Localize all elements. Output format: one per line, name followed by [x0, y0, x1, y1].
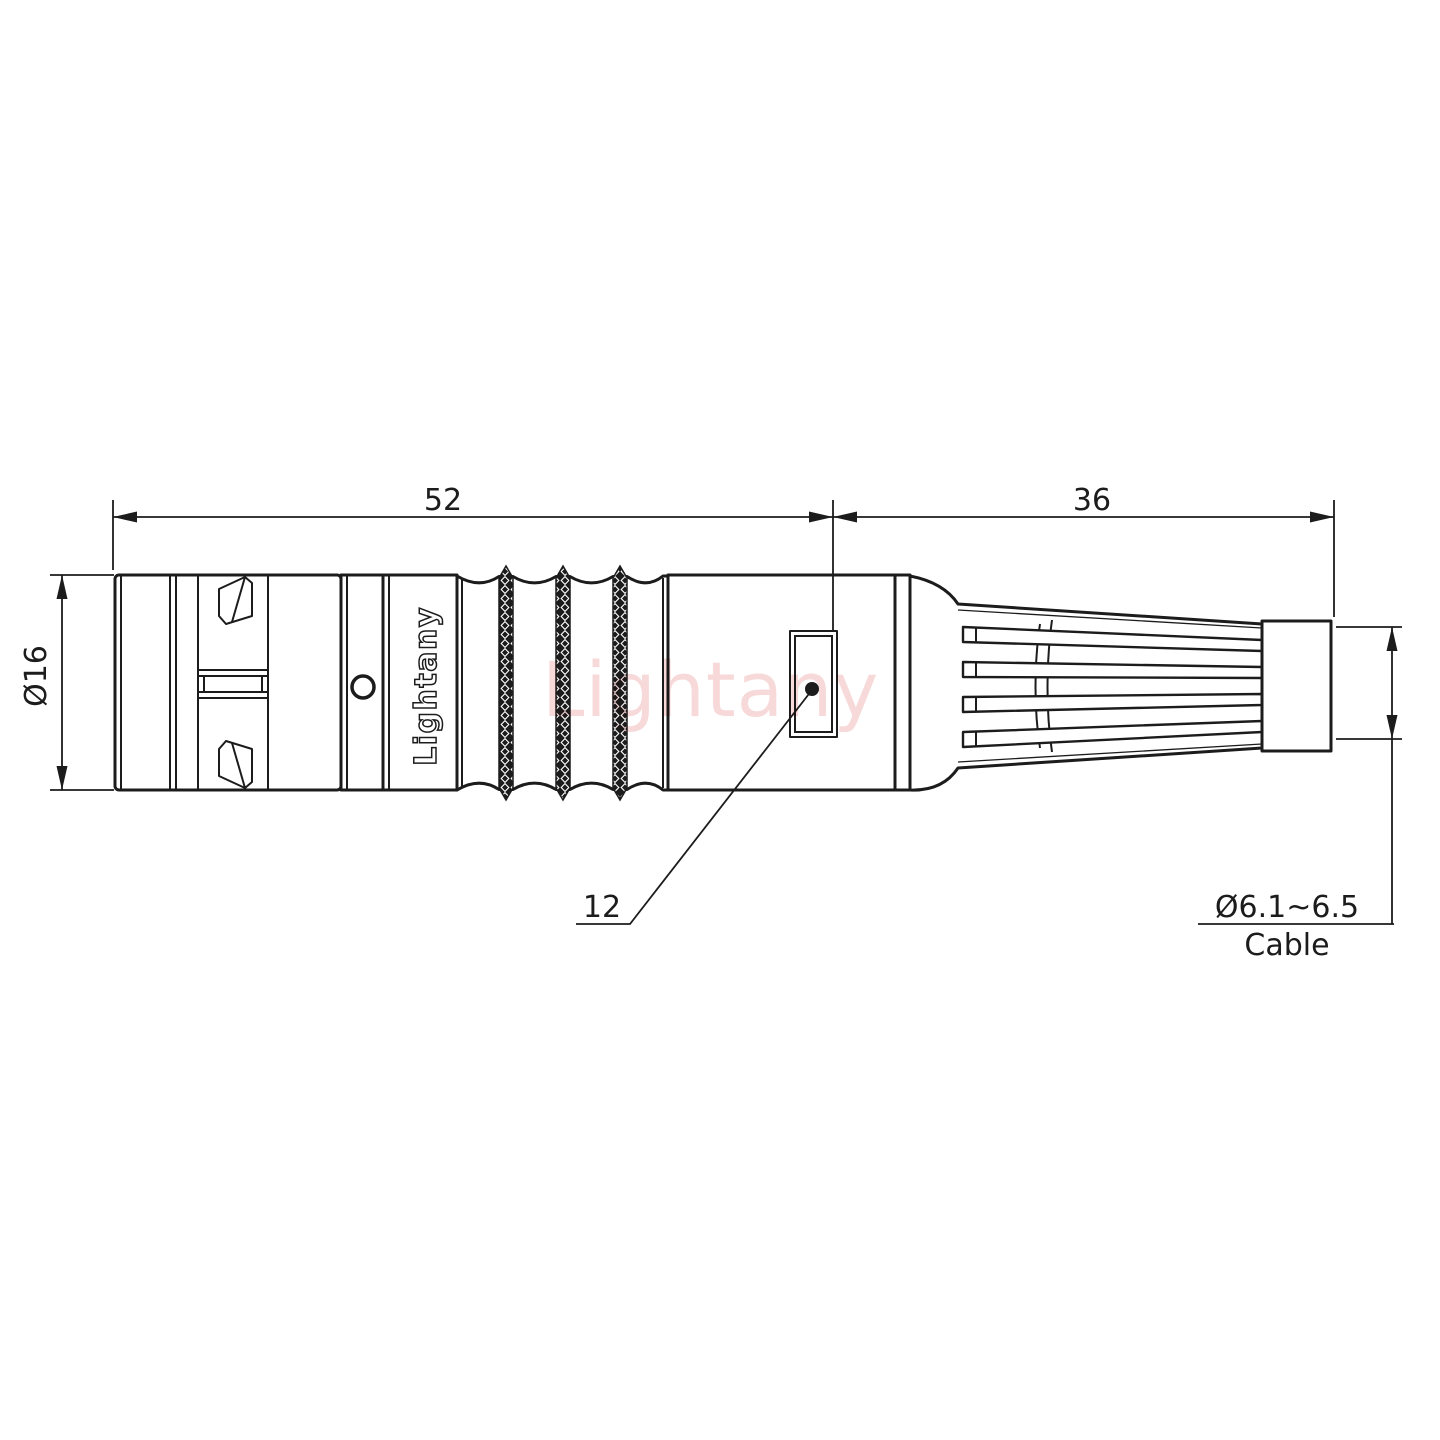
dimension-diameter-16: Ø16 — [19, 575, 114, 790]
watermark: Lightany — [542, 645, 879, 734]
strain-relief-boot — [895, 575, 1262, 790]
dim-diameter-label: Ø16 — [19, 645, 54, 707]
side-hole — [352, 676, 374, 698]
cable-end-cap — [1262, 621, 1331, 751]
dim-cable-range-label: Ø6.1~6.5 — [1215, 890, 1359, 925]
connector-front-section — [115, 575, 341, 790]
dim-52-label: 52 — [424, 483, 462, 518]
connector-collar — [341, 575, 383, 790]
dim-12-label: 12 — [583, 890, 621, 925]
watermark-text: Lightany — [542, 645, 879, 734]
connector-barrel: Lightany — [383, 575, 457, 790]
dim-36-label: 36 — [1073, 483, 1111, 518]
body-logo-text: Lightany — [409, 606, 444, 766]
technical-drawing-svg: Lightany — [0, 0, 1440, 1440]
knurl-band-1 — [499, 566, 513, 800]
drawing-canvas: Lightany — [0, 0, 1440, 1440]
dim-cable-word-label: Cable — [1244, 928, 1329, 963]
